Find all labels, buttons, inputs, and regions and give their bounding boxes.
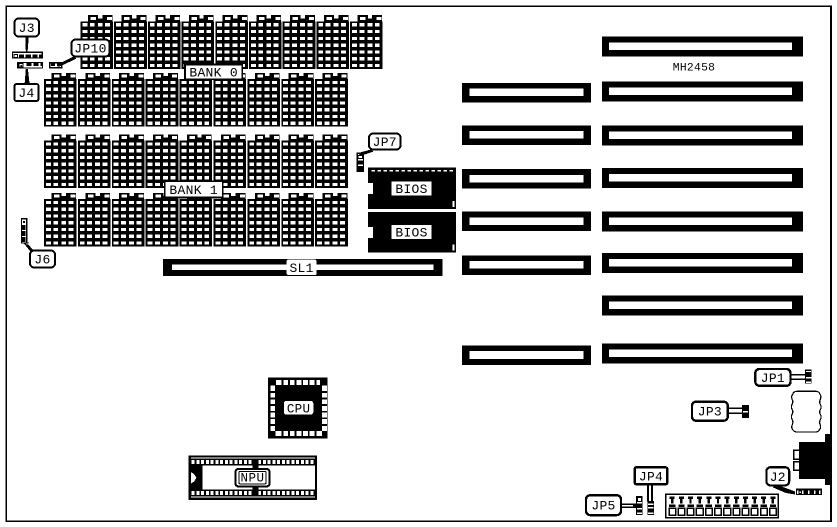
svg-text:SL1: SL1 xyxy=(289,261,313,276)
svg-text:MH2458: MH2458 xyxy=(673,63,715,75)
svg-text:JP5: JP5 xyxy=(591,499,615,514)
svg-text:BIOS: BIOS xyxy=(395,226,427,241)
svg-text:JP1: JP1 xyxy=(761,371,785,386)
svg-text:J2: J2 xyxy=(770,470,786,485)
svg-text:J4: J4 xyxy=(18,86,34,101)
svg-text:JP10: JP10 xyxy=(74,42,106,57)
svg-text:NPU: NPU xyxy=(240,472,264,486)
svg-text:BANK 1: BANK 1 xyxy=(169,183,218,198)
svg-text:CPU: CPU xyxy=(287,402,310,416)
svg-text:JP7: JP7 xyxy=(373,135,397,150)
svg-text:J6: J6 xyxy=(34,253,50,268)
svg-text:BIOS: BIOS xyxy=(395,182,427,197)
svg-text:BANK 0: BANK 0 xyxy=(189,65,238,80)
svg-text:JP3: JP3 xyxy=(698,405,722,420)
svg-text:JP4: JP4 xyxy=(639,469,663,484)
svg-text:J3: J3 xyxy=(19,21,35,36)
